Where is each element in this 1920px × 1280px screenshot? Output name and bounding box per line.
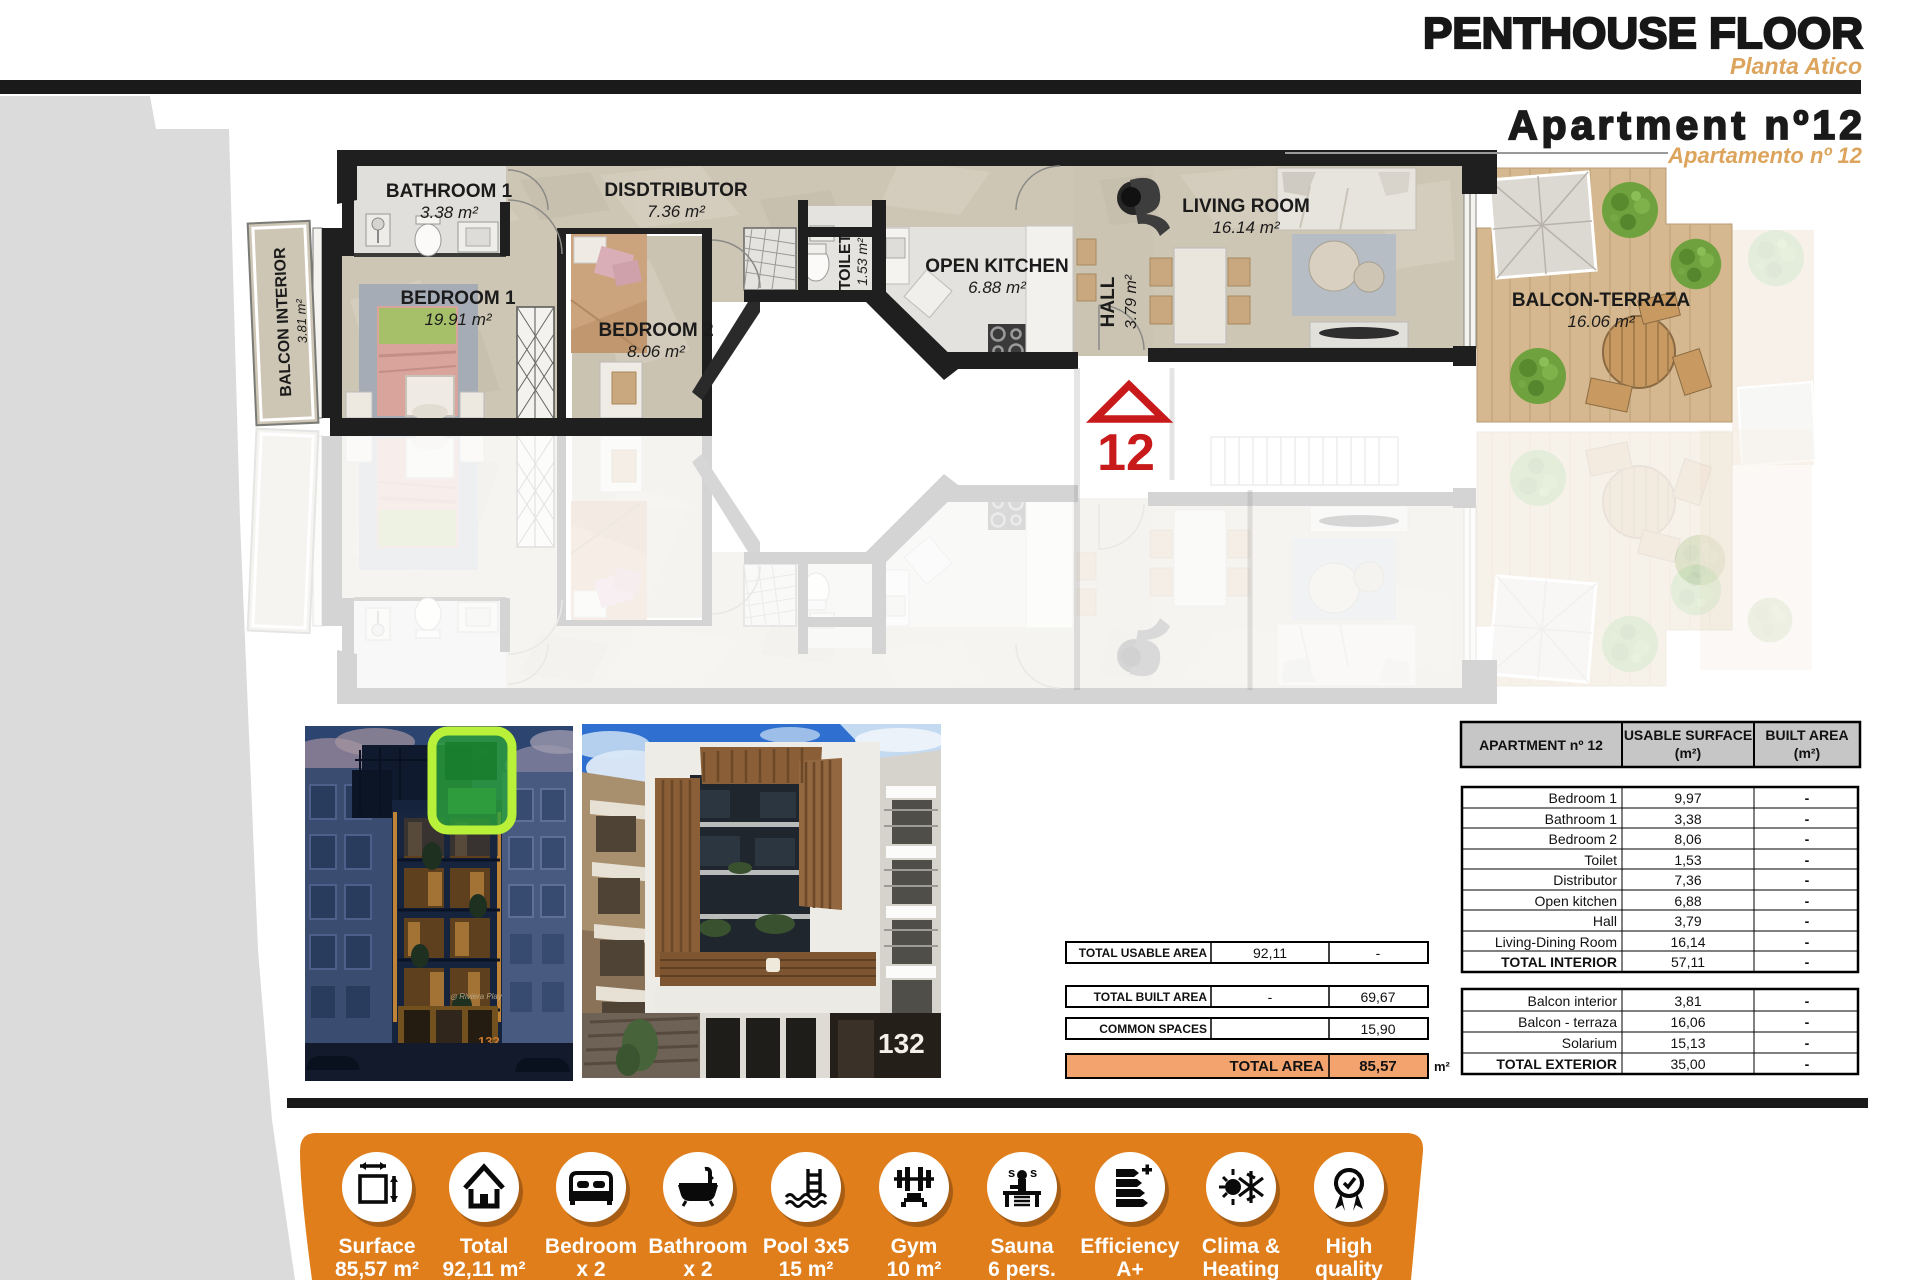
svg-text:PENTHOUSE FLOOR: PENTHOUSE FLOOR xyxy=(1423,9,1863,58)
svg-text:(m²): (m²) xyxy=(1675,745,1701,761)
svg-text:TOTAL BUILT AREA: TOTAL BUILT AREA xyxy=(1094,990,1208,1004)
svg-text:OPEN KITCHEN: OPEN KITCHEN xyxy=(925,256,1069,277)
svg-text:APARTMENT nº 12: APARTMENT nº 12 xyxy=(1479,737,1603,753)
svg-text:7.36 m²: 7.36 m² xyxy=(647,202,706,221)
svg-text:(m²): (m²) xyxy=(1794,745,1820,761)
svg-text:1.53 m²: 1.53 m² xyxy=(854,237,870,286)
svg-text:19.91 m²: 19.91 m² xyxy=(424,310,492,329)
svg-text:57,11: 57,11 xyxy=(1671,954,1705,970)
svg-text:Sauna: Sauna xyxy=(990,1235,1053,1258)
svg-text:Hall: Hall xyxy=(1593,913,1617,929)
svg-text:-: - xyxy=(1805,934,1810,950)
svg-text:Toilet: Toilet xyxy=(1584,852,1617,868)
svg-text:6.88 m²: 6.88 m² xyxy=(968,278,1027,297)
svg-text:132: 132 xyxy=(878,1028,925,1059)
svg-text:Gym: Gym xyxy=(891,1235,938,1258)
svg-text:-: - xyxy=(1805,1056,1810,1072)
svg-text:9,97: 9,97 xyxy=(1674,790,1701,806)
svg-text:3.38 m²: 3.38 m² xyxy=(420,203,479,222)
svg-text:92,11: 92,11 xyxy=(1253,945,1287,961)
svg-text:Heating: Heating xyxy=(1202,1258,1279,1280)
svg-text:-: - xyxy=(1805,831,1810,847)
svg-text:Apartamento nº 12: Apartamento nº 12 xyxy=(1667,143,1863,168)
svg-text:Total: Total xyxy=(460,1235,509,1258)
svg-text:16,14: 16,14 xyxy=(1670,934,1705,950)
svg-text:-: - xyxy=(1805,993,1810,1009)
svg-text:Efficiency: Efficiency xyxy=(1080,1235,1180,1258)
svg-text:s: s xyxy=(1008,1165,1015,1180)
svg-text:BUILT AREA: BUILT AREA xyxy=(1765,727,1848,743)
svg-text:TOTAL USABLE AREA: TOTAL USABLE AREA xyxy=(1079,946,1208,960)
svg-text:HALL: HALL xyxy=(1098,276,1119,327)
svg-text:6 pers.: 6 pers. xyxy=(988,1258,1056,1280)
svg-text:A+: A+ xyxy=(1116,1258,1143,1280)
svg-text:BATHROOM 1: BATHROOM 1 xyxy=(386,181,513,202)
svg-text:-: - xyxy=(1805,913,1810,929)
svg-text:TOTAL INTERIOR: TOTAL INTERIOR xyxy=(1501,954,1617,970)
svg-text:Solarium: Solarium xyxy=(1562,1035,1617,1051)
svg-text:85,57 m²: 85,57 m² xyxy=(335,1258,419,1280)
svg-text:Planta Atico: Planta Atico xyxy=(1730,53,1862,79)
svg-text:85,57: 85,57 xyxy=(1359,1058,1397,1075)
svg-text:15,90: 15,90 xyxy=(1360,1021,1395,1037)
svg-text:TOTAL AREA: TOTAL AREA xyxy=(1230,1058,1325,1075)
svg-text:TOTAL EXTERIOR: TOTAL EXTERIOR xyxy=(1496,1056,1617,1072)
svg-text:3.81 m²: 3.81 m² xyxy=(293,298,310,343)
svg-text:92,11 m²: 92,11 m² xyxy=(443,1258,526,1280)
svg-text:16,06: 16,06 xyxy=(1670,1014,1705,1030)
svg-text:12: 12 xyxy=(1097,424,1155,482)
svg-text:Bathroom: Bathroom xyxy=(648,1235,747,1258)
svg-text:x 2: x 2 xyxy=(683,1258,712,1280)
svg-text:8.06 m²: 8.06 m² xyxy=(627,342,686,361)
svg-text:15,13: 15,13 xyxy=(1670,1035,1705,1051)
svg-text:Balcon interior: Balcon interior xyxy=(1528,993,1618,1009)
svg-text:-: - xyxy=(1805,1035,1810,1051)
svg-text:-: - xyxy=(1805,790,1810,806)
svg-text:10 m²: 10 m² xyxy=(887,1258,942,1280)
svg-text:DISDTRIBUTOR: DISDTRIBUTOR xyxy=(604,180,747,201)
svg-text:Distributor: Distributor xyxy=(1553,872,1617,888)
svg-text:Bedroom 1: Bedroom 1 xyxy=(1549,790,1618,806)
svg-text:-: - xyxy=(1805,852,1810,868)
svg-text:m²: m² xyxy=(1434,1059,1451,1074)
svg-text:-: - xyxy=(1805,954,1810,970)
svg-text:LIVING ROOM: LIVING ROOM xyxy=(1182,196,1310,217)
svg-text:16.14 m²: 16.14 m² xyxy=(1212,218,1280,237)
svg-text:Bathroom 1: Bathroom 1 xyxy=(1545,811,1618,827)
svg-text:TOILET: TOILET xyxy=(837,233,854,290)
svg-text:Clima &: Clima & xyxy=(1202,1235,1280,1258)
svg-text:-: - xyxy=(1268,989,1273,1005)
svg-text:1,53: 1,53 xyxy=(1674,852,1701,868)
svg-text:x 2: x 2 xyxy=(576,1258,605,1280)
svg-text:Bedroom: Bedroom xyxy=(545,1235,637,1258)
svg-text:-: - xyxy=(1805,1014,1810,1030)
svg-text:-: - xyxy=(1805,872,1810,888)
svg-text:69,67: 69,67 xyxy=(1360,989,1395,1005)
svg-text:7,36: 7,36 xyxy=(1674,872,1701,888)
svg-text:◎ Riviera Playa: ◎ Riviera Playa xyxy=(450,992,507,1001)
svg-text:15 m²: 15 m² xyxy=(779,1258,834,1280)
svg-text:Surface: Surface xyxy=(338,1235,415,1258)
svg-text:BEDROOM 1: BEDROOM 1 xyxy=(400,288,516,309)
svg-text:BEDROOM 2: BEDROOM 2 xyxy=(598,320,713,341)
svg-text:-: - xyxy=(1376,945,1381,961)
svg-text:s: s xyxy=(1030,1165,1037,1180)
svg-text:6,88: 6,88 xyxy=(1674,893,1701,909)
svg-text:-: - xyxy=(1805,811,1810,827)
svg-text:USABLE SURFACE: USABLE SURFACE xyxy=(1624,727,1752,743)
svg-text:Balcon - terraza: Balcon - terraza xyxy=(1518,1014,1617,1030)
svg-text:8,06: 8,06 xyxy=(1674,831,1701,847)
svg-text:COMMON SPACES: COMMON SPACES xyxy=(1099,1022,1207,1036)
svg-text:-: - xyxy=(1805,893,1810,909)
svg-text:BALCON-TERRAZA: BALCON-TERRAZA xyxy=(1512,290,1691,311)
svg-text:3,79: 3,79 xyxy=(1674,913,1701,929)
svg-text:3,38: 3,38 xyxy=(1674,811,1701,827)
svg-text:Pool 3x5: Pool 3x5 xyxy=(763,1235,850,1258)
svg-text:Living-Dining Room: Living-Dining Room xyxy=(1495,934,1617,950)
svg-text:35,00: 35,00 xyxy=(1670,1056,1705,1072)
svg-text:quality: quality xyxy=(1315,1258,1383,1280)
svg-text:Bedroom 2: Bedroom 2 xyxy=(1549,831,1618,847)
svg-text:High: High xyxy=(1326,1235,1373,1258)
svg-text:16.06 m²: 16.06 m² xyxy=(1567,312,1635,331)
svg-text:Apartment nº12: Apartment nº12 xyxy=(1508,102,1866,148)
svg-text:3.79 m²: 3.79 m² xyxy=(1123,274,1140,329)
svg-text:Open kitchen: Open kitchen xyxy=(1535,893,1618,909)
svg-text:3,81: 3,81 xyxy=(1674,993,1701,1009)
